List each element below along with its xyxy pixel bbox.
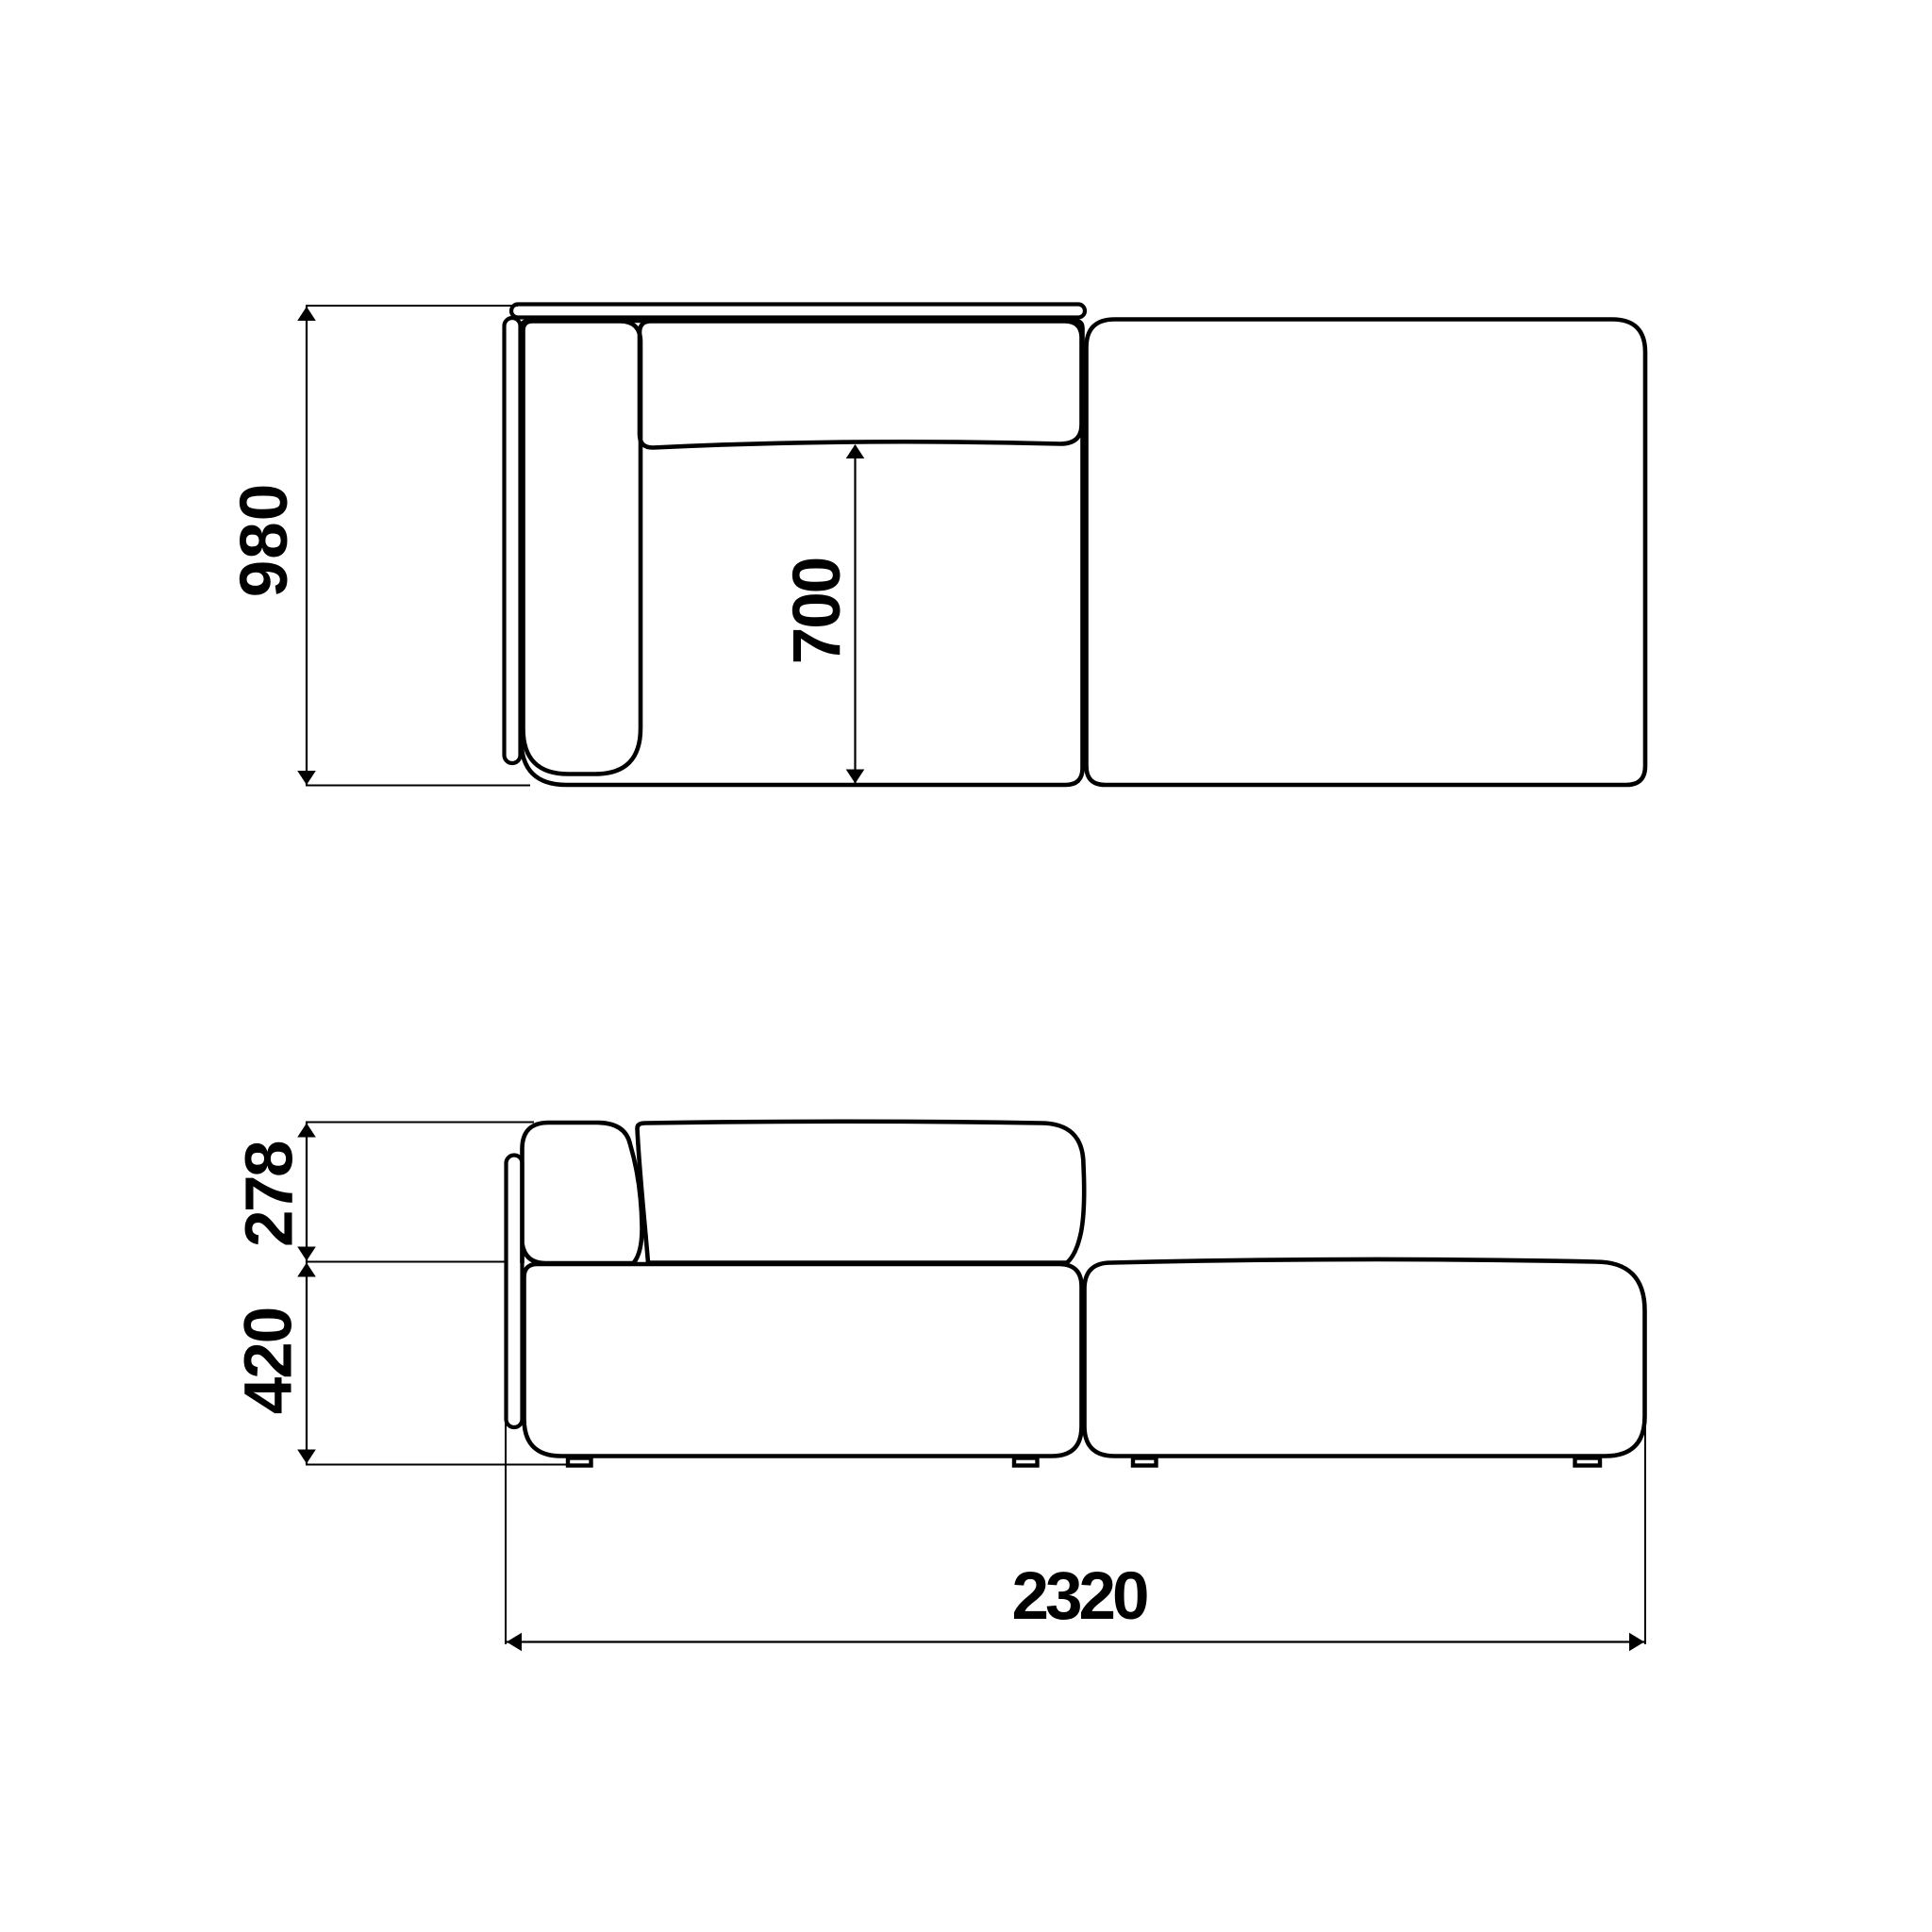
- svg-text:700: 700: [780, 558, 855, 664]
- svg-text:980: 980: [227, 483, 302, 597]
- svg-text:278: 278: [233, 1141, 308, 1247]
- svg-text:2320: 2320: [1012, 1559, 1147, 1634]
- svg-text:420: 420: [232, 1308, 307, 1414]
